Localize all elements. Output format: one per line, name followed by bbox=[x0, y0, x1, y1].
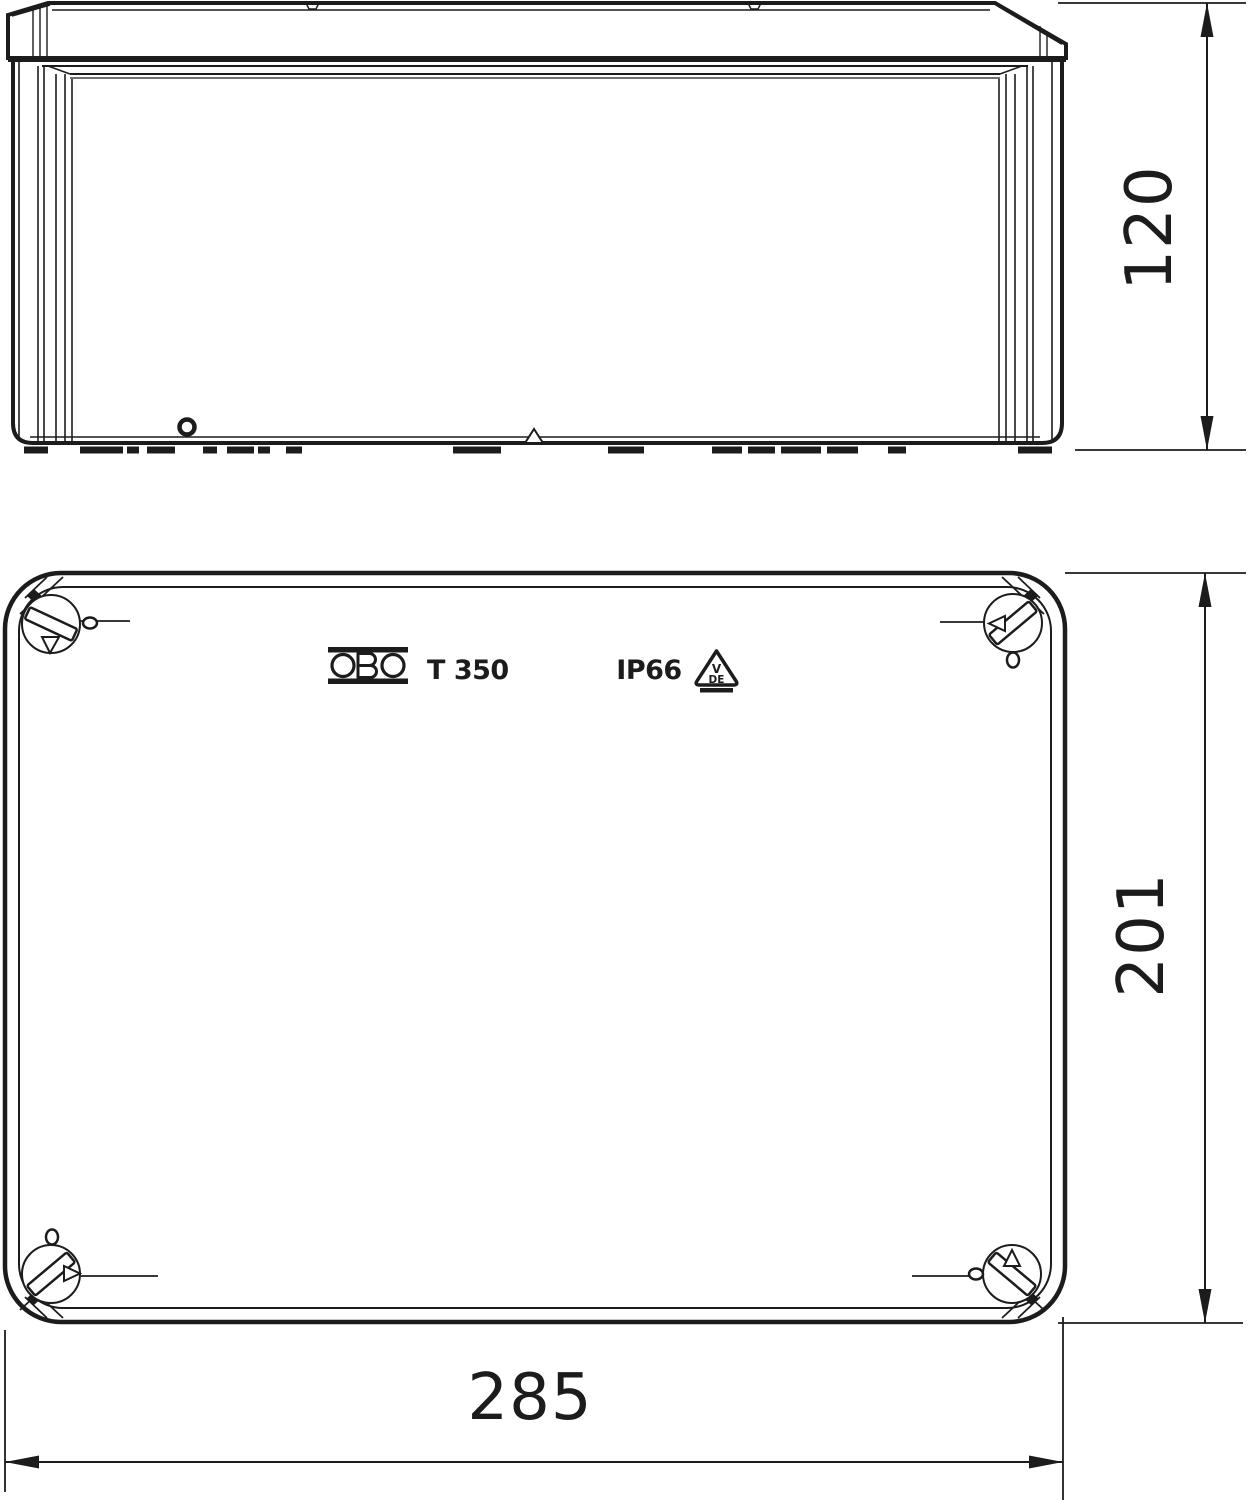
arrowhead-down bbox=[1201, 416, 1214, 450]
dimension-depth: 201 bbox=[1058, 573, 1246, 1323]
dimension-width: 285 bbox=[5, 1317, 1063, 1500]
plan-view: T 350 IP66 V DE bbox=[5, 573, 1065, 1322]
height-dimension-value: 120 bbox=[1113, 165, 1187, 290]
fixing-hole bbox=[180, 420, 195, 435]
captive-oval-mark bbox=[969, 1269, 983, 1280]
dimension-height: 120 bbox=[1058, 3, 1246, 450]
lid-outer-outline bbox=[5, 573, 1065, 1322]
junction-box-dimension-drawing: T 350 IP66 V DE 120 201 285 bbox=[0, 0, 1249, 1500]
captive-oval-mark bbox=[1007, 653, 1019, 668]
width-dimension-value: 285 bbox=[467, 1361, 592, 1435]
captive-oval-mark bbox=[46, 1230, 58, 1245]
vde-logo-bottom-letters: DE bbox=[709, 674, 725, 686]
vde-logo-base-bar bbox=[700, 688, 733, 693]
side-view bbox=[8, 3, 1066, 450]
arrowhead-up bbox=[1201, 3, 1214, 37]
model-label: T 350 bbox=[427, 655, 509, 686]
technical-drawing-page: T 350 IP66 V DE 120 201 285 bbox=[0, 0, 1249, 1500]
ip-rating-label: IP66 bbox=[616, 655, 681, 686]
arrowhead-right bbox=[1029, 1456, 1063, 1469]
obo-logo-letter-b bbox=[358, 654, 377, 678]
box-body-outline bbox=[13, 59, 1062, 443]
lid-outline bbox=[8, 3, 1066, 58]
captive-oval-mark bbox=[83, 618, 97, 629]
arrowhead-left bbox=[5, 1456, 39, 1469]
arrowhead-up bbox=[1199, 573, 1212, 607]
depth-dimension-value: 201 bbox=[1105, 872, 1179, 997]
arrowhead-down bbox=[1199, 1289, 1212, 1323]
